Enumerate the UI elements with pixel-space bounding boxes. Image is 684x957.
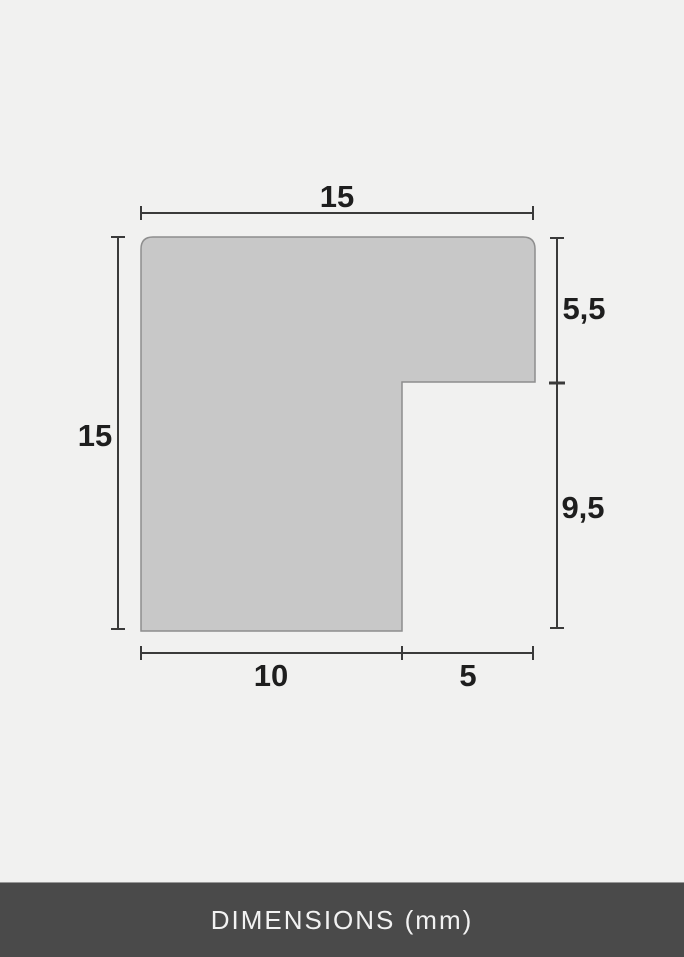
dimension-label-left-height: 15 [78,418,112,453]
dimension-label-right-top: 5,5 [562,291,605,326]
diagram-svg: 15 15 5,5 9,5 [0,0,684,882]
dimension-label-bottom-right: 5 [459,658,476,693]
dimension-label-top-width: 15 [320,179,354,214]
dimension-label-bottom-left: 10 [254,658,288,693]
dimension-label-right-bottom: 9,5 [561,490,604,525]
dimension-left-height [111,237,125,629]
footer-bar: DIMENSIONS (mm) [0,882,684,957]
profile-shape [141,237,535,631]
footer-dimensions-label: DIMENSIONS (mm) [211,905,474,936]
page: 15 15 5,5 9,5 [0,0,684,957]
profile-dimension-diagram: 15 15 5,5 9,5 [0,0,684,882]
